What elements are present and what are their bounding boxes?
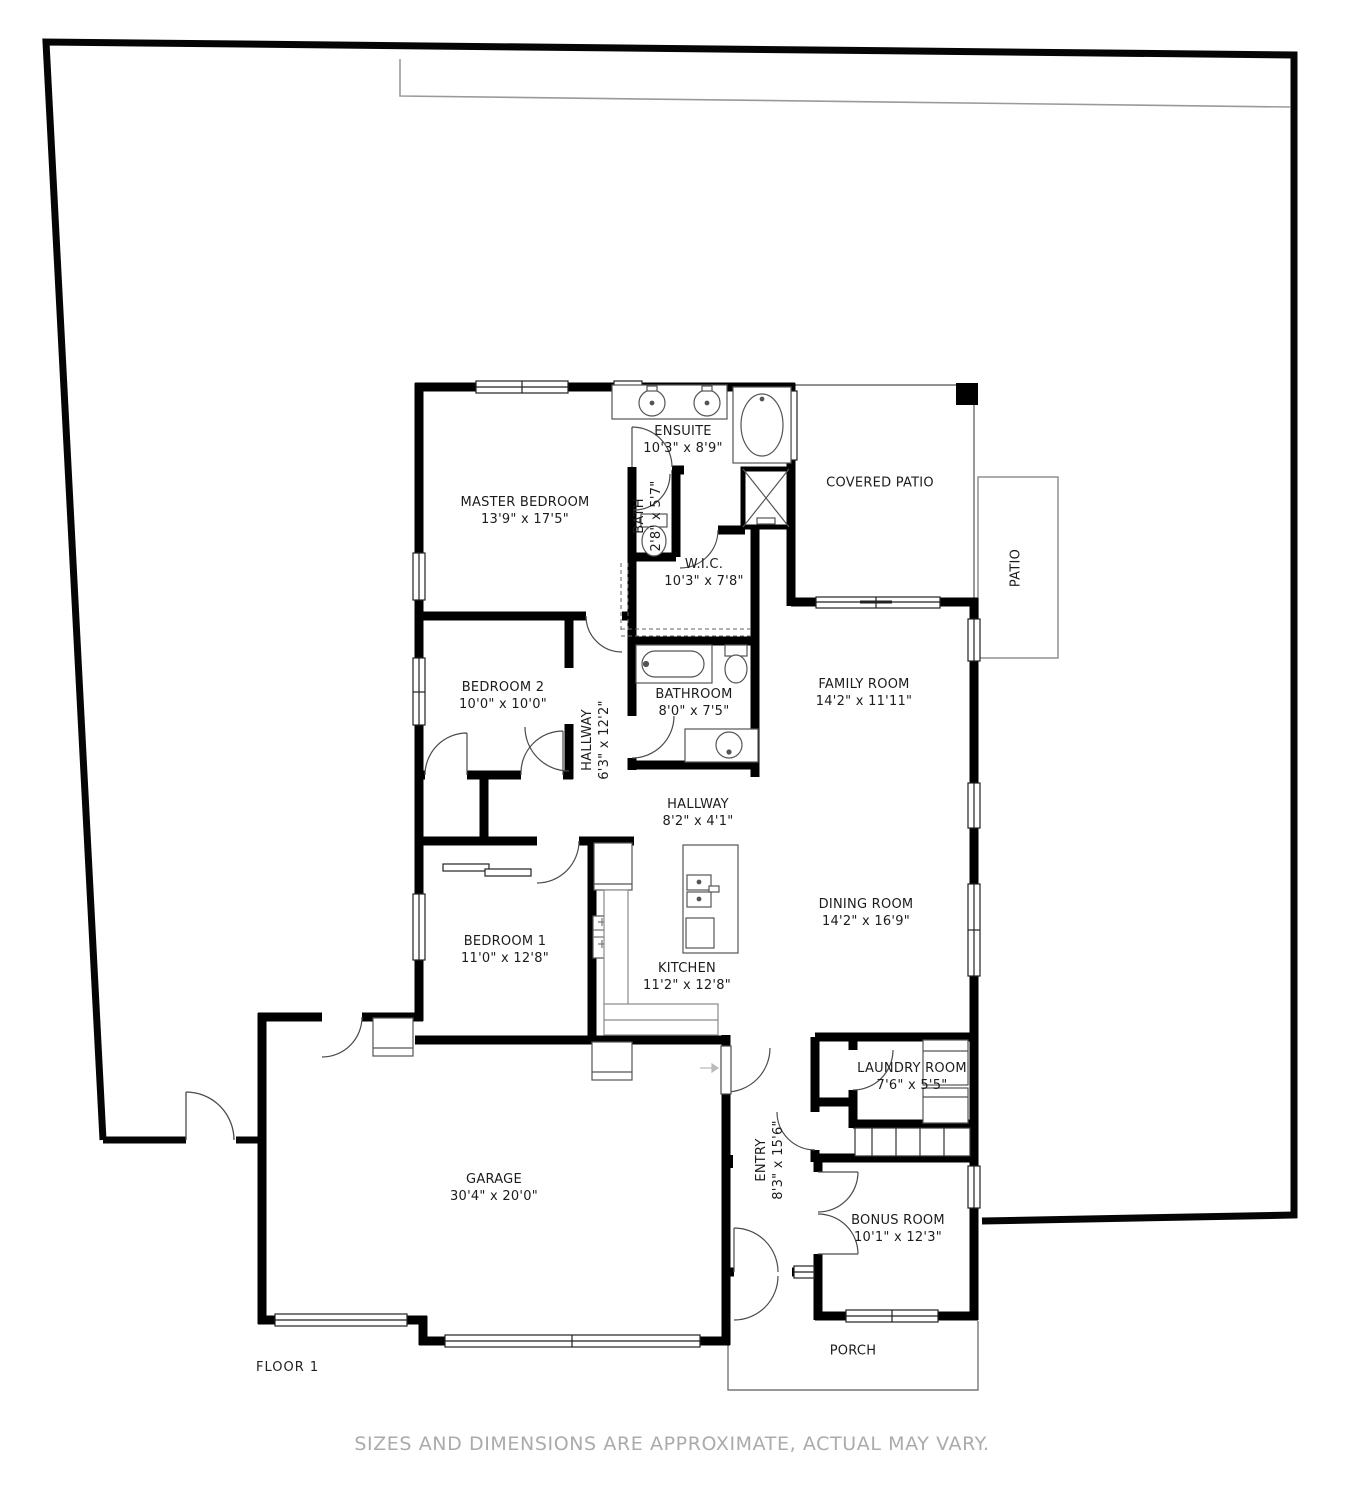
- room-dimensions: 7'6" x 5'5": [857, 1077, 967, 1094]
- room-name: MASTER BEDROOM: [460, 494, 589, 511]
- gate-door: [186, 1092, 234, 1140]
- covered-patio-outline: [795, 385, 974, 598]
- room-name: LAUNDRY ROOM: [857, 1060, 967, 1077]
- room-label-porch: PORCH: [830, 1343, 877, 1360]
- room-label-laundry-room: LAUNDRY ROOM7'6" x 5'5": [857, 1060, 967, 1094]
- room-label-master-bedroom: MASTER BEDROOM13'9" x 17'5": [460, 494, 589, 528]
- fence-line: [400, 59, 1290, 107]
- room-label-garage: GARAGE30'4" x 20'0": [450, 1171, 538, 1205]
- room-name: BATH: [631, 481, 648, 552]
- garage-side-entry-door: [322, 1017, 362, 1057]
- floor-plan-page: MASTER BEDROOM13'9" x 17'5"ENSUITE10'3" …: [0, 0, 1355, 1500]
- room-label-ensuite: ENSUITE10'3" x 8'9": [643, 423, 722, 457]
- window-patio-slider: [816, 597, 940, 608]
- room-dimensions: 10'3" x 7'8": [664, 573, 743, 590]
- room-dimensions: 11'0" x 12'8": [461, 950, 549, 967]
- water-heater-icon: [592, 1042, 632, 1080]
- floor-plan-drawing: [0, 0, 1355, 1500]
- room-dimensions: 6'3" x 12'2": [596, 700, 613, 779]
- garage-side-door: [275, 1314, 407, 1326]
- room-label-bedroom-2: BEDROOM 210'0" x 10'0": [459, 679, 547, 713]
- room-label-hallway-1: HALLWAY6'3" x 12'2": [579, 700, 613, 779]
- room-name: GARAGE: [450, 1171, 538, 1188]
- patio-corner-post: [956, 383, 978, 405]
- garage-appliance-icon: [373, 1018, 413, 1056]
- room-label-bath: BATH2'8" x 5'7": [631, 481, 665, 552]
- room-label-entry: ENTRY8'3" x 15'6": [753, 1120, 787, 1199]
- bathtub-icon: [733, 387, 791, 463]
- window-bedroom1-left: [413, 894, 425, 960]
- room-name: BEDROOM 1: [461, 933, 549, 950]
- room-dimensions: 2'8" x 5'7": [648, 481, 665, 552]
- closet-left-door: [425, 733, 467, 775]
- window-entry-sidelite: [794, 1266, 814, 1278]
- room-label-wic: W.I.C.10'3" x 7'8": [664, 556, 743, 590]
- window-bonus-right: [968, 1166, 980, 1208]
- room-name: W.I.C.: [664, 556, 743, 573]
- room-dimensions: 10'3" x 8'9": [643, 440, 722, 457]
- front-door-outside: [734, 1276, 778, 1320]
- garage-entry-door: [726, 1048, 770, 1092]
- bonus-door-upper: [818, 1172, 858, 1212]
- room-dimensions: 14'2" x 16'9": [819, 913, 914, 930]
- window-master-top: [476, 381, 568, 393]
- room-dimensions: 10'1" x 12'3": [851, 1229, 945, 1246]
- room-dimensions: 14'2" x 11'11": [816, 693, 912, 710]
- room-name: BONUS ROOM: [851, 1212, 945, 1229]
- room-name: ENSUITE: [643, 423, 722, 440]
- room-label-bonus-room: BONUS ROOM10'1" x 12'3": [851, 1212, 945, 1246]
- room-name: PORCH: [830, 1343, 877, 1360]
- wall-stub: [722, 1155, 733, 1168]
- window-family-right-2: [968, 783, 980, 828]
- room-dimensions: 8'3" x 15'6": [770, 1120, 787, 1199]
- shower-icon: [743, 469, 789, 527]
- room-label-covered-patio: COVERED PATIO: [826, 475, 934, 492]
- ensuite-vanity: [612, 385, 727, 419]
- room-name: ENTRY: [753, 1120, 770, 1199]
- master-door: [586, 616, 622, 652]
- room-dimensions: 30'4" x 20'0": [450, 1188, 538, 1205]
- kitchen-island: [683, 845, 738, 953]
- room-name: HALLWAY: [663, 796, 734, 813]
- window-master-left: [413, 553, 425, 600]
- closet-right-door: [521, 731, 563, 775]
- refrigerator-icon: [594, 843, 632, 890]
- room-name: DINING ROOM: [819, 896, 914, 913]
- room-name: FAMILY ROOM: [816, 676, 912, 693]
- room-label-kitchen: KITCHEN11'2" x 12'8": [643, 960, 731, 994]
- room-label-bathroom: BATHROOM8'0" x 7'5": [655, 686, 732, 720]
- room-label-patio: PATIO: [1008, 549, 1025, 587]
- room-label-bedroom-1: BEDROOM 111'0" x 12'8": [461, 933, 549, 967]
- window-porch: [846, 1310, 938, 1322]
- bathroom-tub-icon: [636, 645, 712, 683]
- room-name: BATHROOM: [655, 686, 732, 703]
- staircase: [855, 1128, 970, 1156]
- bathroom-vanity: [685, 729, 758, 762]
- bedroom1-door: [537, 841, 579, 883]
- window-bedroom2-left: [413, 658, 425, 725]
- window-family-right-1: [968, 619, 980, 661]
- room-dimensions: 8'0" x 7'5": [655, 703, 732, 720]
- room-name: KITCHEN: [643, 960, 731, 977]
- room-dimensions: 10'0" x 10'0": [459, 696, 547, 713]
- room-name: COVERED PATIO: [826, 475, 934, 492]
- floor-label: FLOOR 1: [256, 1360, 319, 1375]
- room-dimensions: 13'9" x 17'5": [460, 511, 589, 528]
- front-door-inside: [734, 1228, 778, 1272]
- room-name: PATIO: [1008, 549, 1025, 587]
- disclaimer-text: SIZES AND DIMENSIONS ARE APPROXIMATE, AC…: [354, 1433, 989, 1455]
- room-label-dining-room: DINING ROOM14'2" x 16'9": [819, 896, 914, 930]
- room-label-hallway-2: HALLWAY8'2" x 4'1": [663, 796, 734, 830]
- bathroom-toilet-icon: [725, 645, 747, 683]
- window-dining-right: [968, 884, 980, 976]
- closet-slider-bedroom1: [443, 864, 531, 876]
- room-dimensions: 11'2" x 12'8": [643, 977, 731, 994]
- garage-entry-door-leaf: [700, 1046, 731, 1094]
- porch-outline: [728, 1277, 978, 1390]
- room-label-family-room: FAMILY ROOM14'2" x 11'11": [816, 676, 912, 710]
- room-name: HALLWAY: [579, 700, 596, 779]
- room-dimensions: 8'2" x 4'1": [663, 813, 734, 830]
- bathroom-door: [632, 716, 674, 758]
- room-name: BEDROOM 2: [459, 679, 547, 696]
- garage-main-door: [445, 1335, 700, 1347]
